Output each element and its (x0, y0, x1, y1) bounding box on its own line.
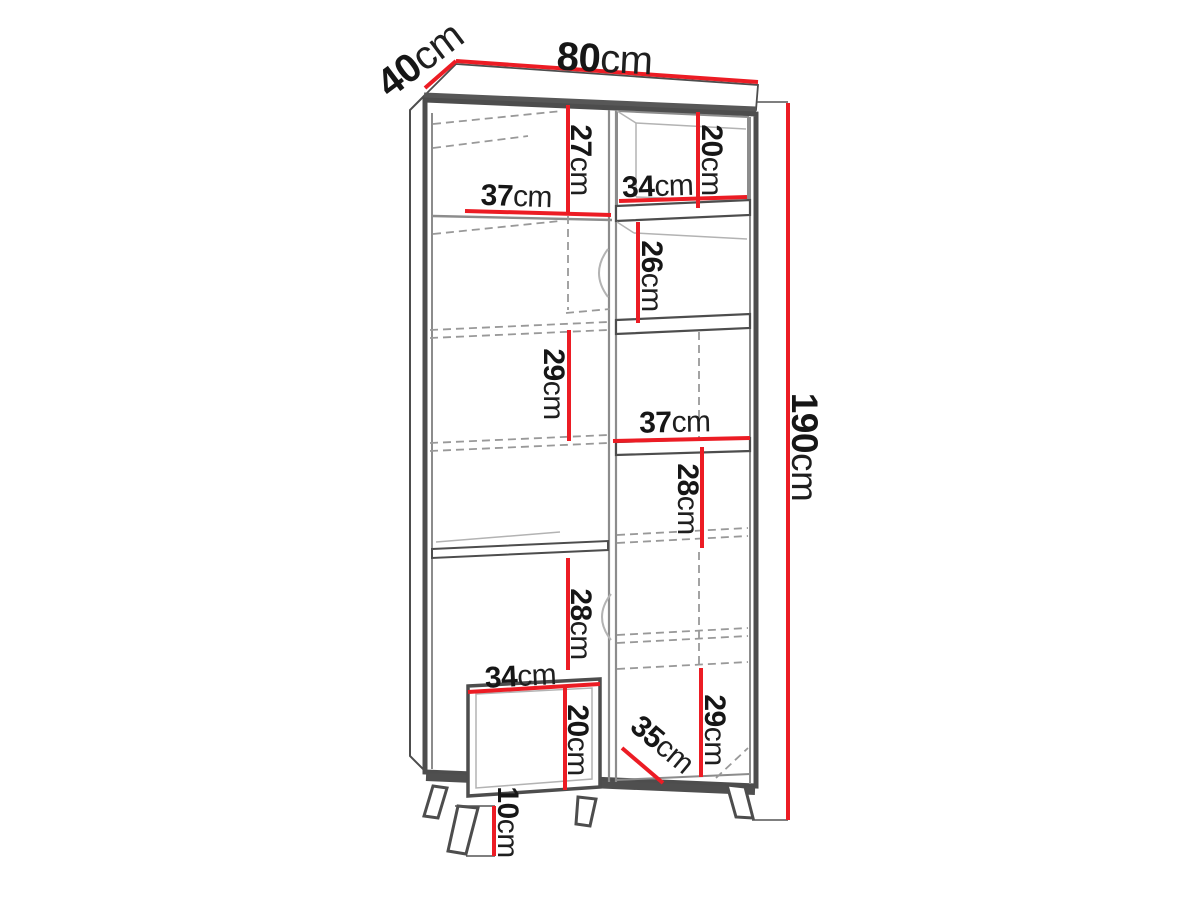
dim-label-height: 190cm (784, 393, 825, 502)
cabinet-left-side (410, 96, 424, 770)
leg-front-left (448, 806, 478, 854)
dim-label-top-left-width: 37cm (480, 179, 552, 214)
dim-label-legs-height: 10cm (491, 786, 524, 857)
leg-center (576, 797, 596, 826)
dim-label-width: 80cm (556, 35, 654, 84)
dim-label-right-middle-height: 28cm (671, 463, 704, 534)
dim-label-top-left-height: 27cm (564, 124, 597, 195)
dim-label-right-middle-width: 37cm (639, 405, 711, 439)
dim-label-bottom-left-width: 34cm (484, 658, 557, 695)
dim-label-left-lower-height: 28cm (564, 588, 597, 659)
furniture-dimension-diagram: 80cm 40cm 190cm 37cm 27cm 34cm 20cm 26cm… (0, 0, 1200, 900)
leg-back-left (424, 786, 447, 818)
dim-label-bottom-left-height: 20cm (561, 704, 594, 775)
dim-label-top-right-height: 20cm (695, 124, 728, 195)
dim-label-right-upper-height: 26cm (635, 240, 668, 311)
dim-label-top-right-width: 34cm (621, 169, 693, 204)
dim-label-bottom-right-height: 29cm (698, 694, 731, 765)
dim-label-left-middle-height: 29cm (537, 348, 570, 419)
